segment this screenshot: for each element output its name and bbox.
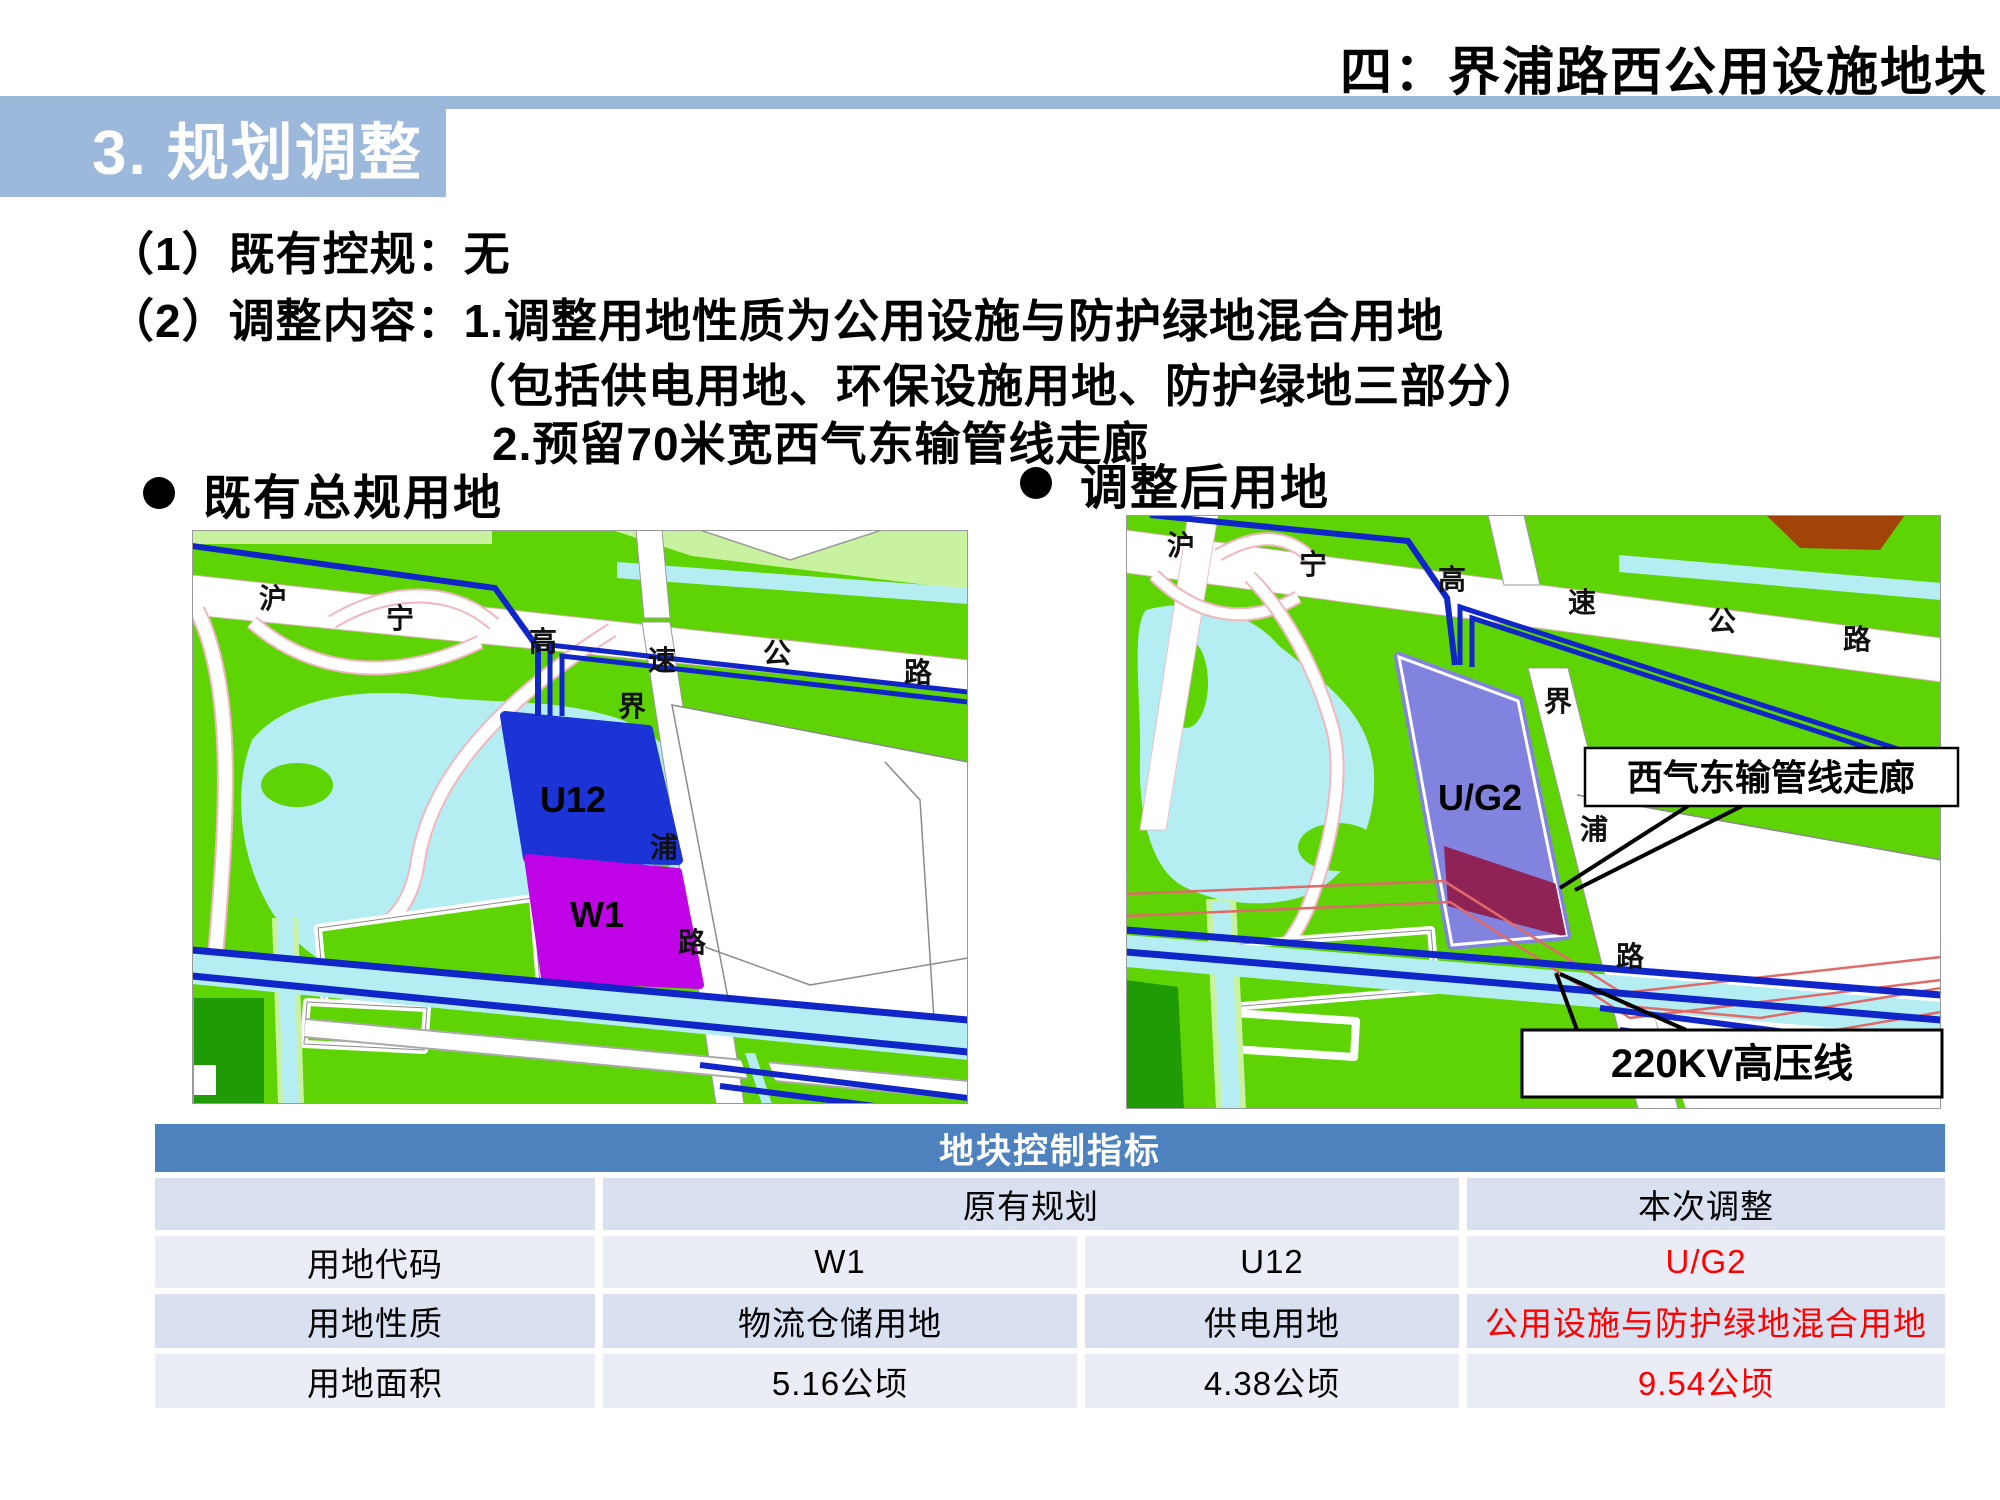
cell-code-adjusted: U/G2 <box>1467 1236 1945 1288</box>
bullet-adjusted-landuse: 调整后用地 <box>1020 448 1330 518</box>
section-title: 3. 规划调整 <box>92 102 423 192</box>
road-label: 路 <box>1843 624 1872 655</box>
parcel-label: U/G2 <box>1438 777 1522 818</box>
road-label: 公 <box>1708 606 1736 637</box>
road-label: 高 <box>529 626 557 657</box>
parcel-label: W1 <box>570 894 624 935</box>
row-label-code: 用地代码 <box>155 1236 595 1288</box>
text-line-adjustment-1: （2）调整内容：1.调整用地性质为公用设施与防护绿地混合用地 <box>108 285 1444 351</box>
road-label: 速 <box>1568 587 1596 618</box>
cell-nature-w1: 物流仓储用地 <box>603 1294 1077 1348</box>
text-line-existing-plan: （1）既有控规：无 <box>108 218 511 284</box>
row-label-nature: 用地性质 <box>155 1294 595 1348</box>
table-title: 地块控制指标 <box>155 1124 1945 1172</box>
road-label: 浦 <box>1580 814 1608 845</box>
bullet-right-label: 调整后用地 <box>1080 448 1330 518</box>
road-label: 浦 <box>650 832 678 863</box>
powerline-callout-label: 220KV高压线 <box>1611 1042 1853 1086</box>
road-label: 宁 <box>386 602 414 634</box>
row-label-area: 用地面积 <box>155 1354 595 1408</box>
cell-area-u12: 4.38公顷 <box>1085 1354 1459 1408</box>
road-label: 路 <box>678 927 707 958</box>
road-label: 沪 <box>259 583 287 614</box>
cell-area-w1: 5.16公顷 <box>603 1354 1077 1408</box>
parcel-label: U12 <box>540 779 606 820</box>
text-line-adjustment-detail: （包括供电用地、环保设施用地、防护绿地三部分） <box>460 350 1541 416</box>
road-label: 路 <box>1616 941 1645 972</box>
road-label: 公 <box>763 638 791 669</box>
corner-title: 四：界浦路西公用设施地块 <box>1340 30 1988 105</box>
bullet-icon <box>1020 467 1052 499</box>
cell-nature-u12: 供电用地 <box>1085 1294 1459 1348</box>
cell-code-u12: U12 <box>1085 1236 1459 1288</box>
bullet-existing-landuse: 既有总规用地 <box>143 458 503 528</box>
road-label: 速 <box>648 645 676 676</box>
section-header: 3. 规划调整 <box>0 96 446 197</box>
cell-code-w1: W1 <box>603 1236 1077 1288</box>
table-group-adjusted: 本次调整 <box>1467 1178 1945 1230</box>
plot-control-table: 地块控制指标 原有规划 本次调整 用地代码 W1 U12 U/G2 用地性质 物… <box>155 1124 1945 1408</box>
bullet-icon <box>143 477 175 509</box>
table-corner-cell <box>155 1178 595 1230</box>
adjusted-plan-map: 沪宁高速公路界浦路U/G2 西气东输管线走廊 220KV高压线 <box>1126 515 1976 1109</box>
slide: 四：界浦路西公用设施地块 3. 规划调整 （1）既有控规：无 （2）调整内容：1… <box>0 0 2000 1500</box>
cell-nature-adjusted: 公用设施与防护绿地混合用地 <box>1467 1294 1945 1348</box>
road-label: 沪 <box>1167 530 1195 561</box>
pipeline-callout-label: 西气东输管线走廊 <box>1627 757 1915 798</box>
cell-area-adjusted: 9.54公顷 <box>1467 1354 1945 1408</box>
road-label: 宁 <box>1299 548 1327 580</box>
road-label: 高 <box>1438 564 1466 595</box>
road-label: 界 <box>1544 686 1572 717</box>
bullet-left-label: 既有总规用地 <box>203 458 503 528</box>
table-group-original: 原有规划 <box>603 1178 1459 1230</box>
road-label: 路 <box>904 657 933 688</box>
existing-plan-map: 沪宁高速公路界浦路U12W1 <box>192 530 968 1104</box>
road-label: 界 <box>618 691 646 722</box>
